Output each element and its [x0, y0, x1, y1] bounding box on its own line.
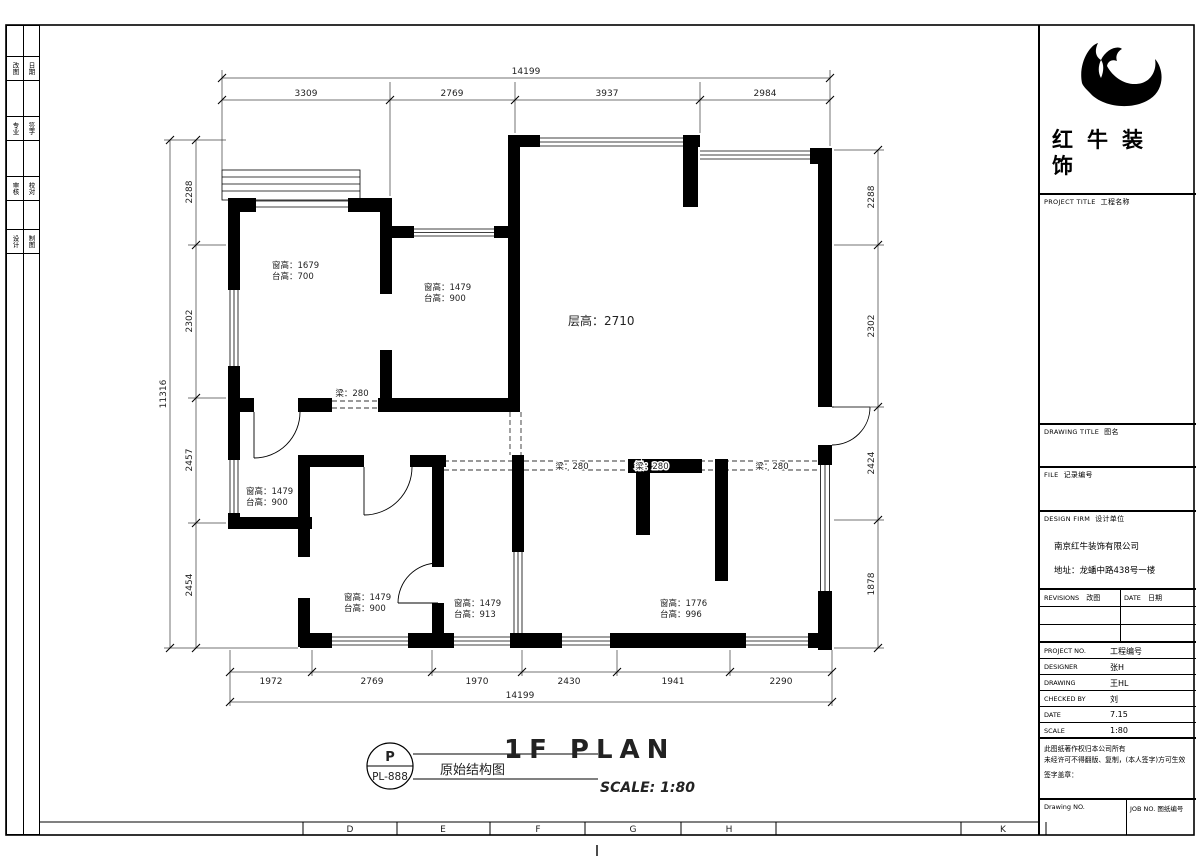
strip-cell: 改图	[7, 57, 23, 80]
plan-title: 1F PLAN	[504, 735, 675, 765]
dim-right-4: 1878	[867, 572, 877, 595]
scale-value: 1:80	[1110, 726, 1128, 735]
notes-section: 此图纸著作权归本公司所有 未经许可不得翻版、复制，(本人签字)方可生效 签字盖章…	[1040, 740, 1196, 800]
grid-letters: D E F G H K	[347, 825, 1008, 835]
beam-label-1: 梁：280	[335, 389, 368, 399]
room5-window-height: 窗高：1479	[454, 598, 501, 609]
stamp-code: PL-888	[372, 771, 408, 783]
dim-left-2: 2302	[185, 310, 195, 333]
file-cn: 记录编号	[1064, 471, 1093, 479]
dim-top-overall: 14199	[512, 67, 541, 77]
dim-bottom-5: 1941	[662, 677, 685, 687]
date-row: DATE 7.15	[1040, 707, 1196, 723]
dim-right-1: 2288	[867, 185, 877, 208]
date-label: DATE	[1044, 711, 1061, 719]
drawing-sheet: D E F G H K	[0, 0, 1200, 856]
grid-letter: G	[630, 825, 637, 835]
room6-sill-height: 台高：996	[660, 609, 702, 620]
door-swings	[254, 407, 870, 603]
project-title-label: PROJECT TITLE	[1044, 198, 1096, 206]
revisions-line	[1040, 624, 1196, 625]
beam-label-2: 梁：280	[555, 462, 588, 472]
room2-window-height: 窗高：1479	[424, 282, 471, 293]
dim-left-overall: 11316	[159, 379, 169, 408]
footer-title-area: P PL-888 原始结构图 1F PLAN SCALE: 1:80	[367, 735, 695, 796]
scale-label: SCALE	[1044, 727, 1065, 735]
logo-text-line1: 红牛装	[1052, 127, 1184, 153]
room3-sill-height: 台高：900	[246, 497, 288, 508]
floor-height-label: 层高：2710	[568, 313, 635, 328]
room5-sill-height: 台高：913	[454, 609, 496, 620]
strip-cell: 专业	[7, 117, 23, 140]
date-col-label: DATE	[1124, 594, 1141, 602]
dim-top-2: 2769	[441, 89, 464, 99]
dimension-ticks	[166, 74, 882, 706]
revisions-table: REVISIONS 改图 DATE 日期	[1040, 590, 1196, 643]
design-firm-cn: 设计单位	[1095, 515, 1124, 523]
project-no-label: PROJECT NO.	[1044, 647, 1086, 655]
design-firm-section: DESIGN FIRM设计单位 南京红牛装饰有限公司 地址：龙蟠中路438号一楼	[1040, 512, 1196, 590]
dim-right-2: 2302	[867, 315, 877, 338]
dim-bottom-6: 2290	[770, 677, 793, 687]
dim-left-4: 2454	[185, 573, 195, 596]
room1-window-height: 窗高：1679	[272, 260, 319, 271]
drawing-name: 原始结构图	[440, 763, 505, 778]
checked-by-value: 刘	[1110, 694, 1118, 705]
drawing-row: DRAWING 王HL	[1040, 675, 1196, 691]
file-section: FILE记录编号	[1040, 468, 1196, 512]
dim-bottom-3: 1970	[466, 677, 489, 687]
room-annotations: 窗高：1679 台高：700 窗高：1479 台高：900 窗高：1479 台高…	[246, 260, 707, 620]
note-line-2: 未经许可不得翻版、复制，(本人签字)方可生效	[1044, 755, 1192, 766]
strip-cell: 签字	[23, 117, 39, 140]
logo-text: 红牛装 饰	[1052, 127, 1184, 179]
beam-label-4: 梁：280	[755, 462, 788, 472]
dim-bottom-overall: 14199	[506, 691, 535, 701]
drawing-title-section: DRAWING TITLE图名	[1040, 425, 1196, 468]
stamp-letter: P	[385, 750, 395, 765]
dim-bottom-4: 2430	[558, 677, 581, 687]
room4-window-height: 窗高：1479	[344, 592, 391, 603]
note-line-1: 此图纸著作权归本公司所有	[1044, 744, 1192, 755]
room6-window-height: 窗高：1776	[660, 598, 707, 609]
strip-cell: 审核	[7, 177, 23, 200]
dim-right-3: 2424	[867, 451, 877, 474]
strip-cell: 制图	[23, 230, 39, 253]
grid-letter: H	[726, 825, 733, 835]
floor-plan-canvas: D E F G H K	[0, 0, 1200, 856]
room4-sill-height: 台高：900	[344, 603, 386, 614]
strip-row: 改图 日期	[7, 56, 39, 81]
designer-value: 张H	[1110, 662, 1124, 673]
drawing-value: 王HL	[1110, 678, 1128, 689]
scale-row: SCALE 1:80	[1040, 723, 1196, 739]
dim-top-1: 3309	[295, 89, 318, 99]
room1-sill-height: 台高：700	[272, 271, 314, 282]
checked-by-row: CHECKED BY 刘	[1040, 691, 1196, 707]
drawing-title-cn: 图名	[1104, 428, 1119, 436]
drawing-no-cell: Drawing NO.	[1040, 800, 1126, 835]
checked-by-label: CHECKED BY	[1044, 695, 1086, 703]
dim-bottom-2: 2769	[361, 677, 384, 687]
scale-text: SCALE: 1:80	[600, 780, 695, 796]
date-col-cn: 日期	[1148, 594, 1162, 602]
project-no-value: 工程编号	[1110, 646, 1142, 657]
strip-row: 审核 校对	[7, 176, 39, 201]
revisions-label: REVISIONS	[1044, 594, 1079, 602]
dim-left-3: 2457	[185, 449, 195, 472]
bull-logo-icon	[1068, 33, 1168, 125]
strip-row: 设计 制图	[7, 229, 39, 254]
project-title-cn: 工程名称	[1101, 198, 1130, 206]
drawing-label: DRAWING	[1044, 679, 1076, 687]
designer-label: DESIGNER	[1044, 663, 1078, 671]
dim-top-3: 3937	[596, 89, 619, 99]
strip-row: 专业 签字	[7, 116, 39, 141]
dimension-lines	[164, 70, 884, 706]
logo-text-line2: 饰	[1052, 153, 1184, 179]
company-address: 地址：龙蟠中路438号一楼	[1054, 564, 1155, 576]
title-block: 红牛装 饰 PROJECT TITLE工程名称 DRAWING TITLE图名 …	[1038, 25, 1194, 835]
project-no-row: PROJECT NO. 工程编号	[1040, 643, 1196, 659]
strip-cell: 校对	[23, 177, 39, 200]
left-register-strip: 改图 日期 专业 签字 审核 校对 设计 制图	[6, 25, 40, 835]
company-name: 南京红牛装饰有限公司	[1054, 540, 1139, 552]
job-no-cell: JOB NO. 图纸编号	[1126, 800, 1196, 835]
note-line-3: 签字盖章：	[1044, 770, 1192, 781]
beam-label-3: 梁：280	[635, 462, 668, 472]
date-value: 7.15	[1110, 710, 1128, 719]
revisions-cn: 改图	[1086, 594, 1100, 602]
number-cells: Drawing NO. JOB NO. 图纸编号	[1040, 800, 1196, 835]
grid-letter: F	[535, 825, 540, 835]
project-title-section: PROJECT TITLE工程名称	[1040, 195, 1196, 425]
room3-window-height: 窗高：1479	[246, 486, 293, 497]
file-label: FILE	[1044, 471, 1059, 479]
strip-cell: 设计	[7, 230, 23, 253]
dim-bottom-1: 1972	[260, 677, 283, 687]
logo-section: 红牛装 饰	[1040, 25, 1196, 195]
walls	[228, 135, 832, 650]
revisions-line	[1040, 606, 1196, 607]
grid-letter: E	[440, 825, 446, 835]
designer-row: DESIGNER 张H	[1040, 659, 1196, 675]
dim-left-1: 2288	[185, 180, 195, 203]
strip-divider	[23, 26, 24, 834]
design-firm-label: DESIGN FIRM	[1044, 515, 1090, 523]
grid-letter: D	[347, 825, 354, 835]
sheet-frame	[6, 25, 1194, 856]
room2-sill-height: 台高：900	[424, 293, 466, 304]
strip-cell: 日期	[23, 57, 39, 80]
grid-letter: K	[1000, 825, 1007, 835]
windows	[222, 138, 830, 645]
drawing-title-label: DRAWING TITLE	[1044, 428, 1099, 436]
dim-top-4: 2984	[754, 89, 777, 99]
